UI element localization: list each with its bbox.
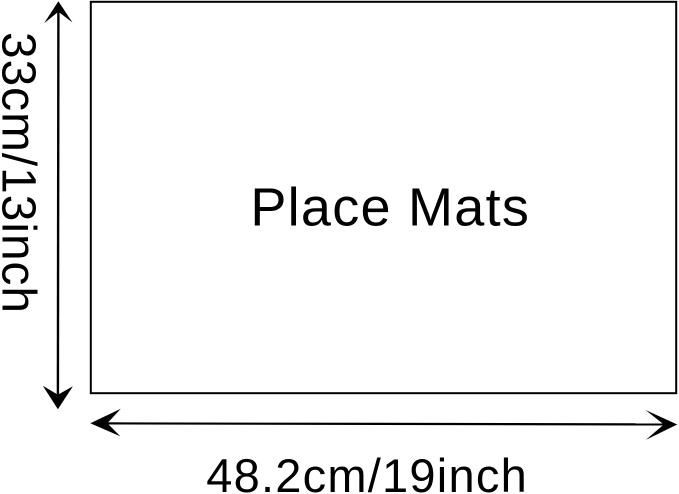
svg-text:48.2cm/19inch: 48.2cm/19inch — [206, 449, 528, 494]
svg-text:Place Mats: Place Mats — [250, 178, 530, 238]
svg-text:33cm/13inch: 33cm/13inch — [0, 32, 45, 314]
